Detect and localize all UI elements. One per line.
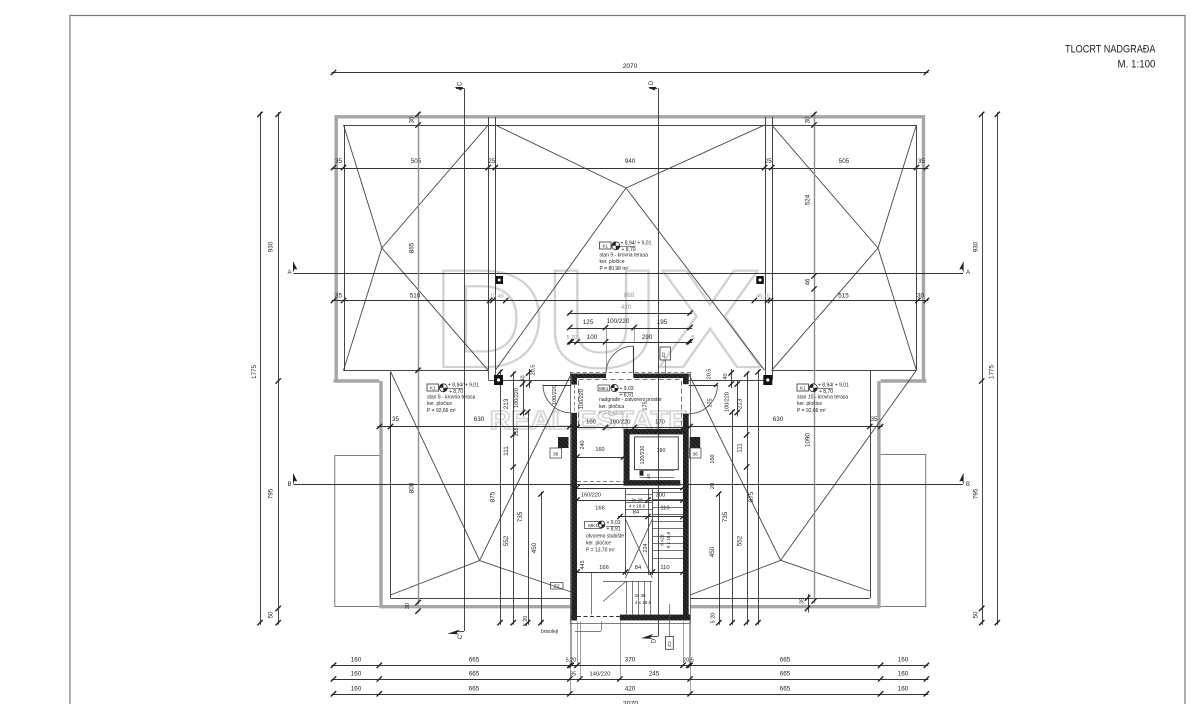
svg-text:M. 1:100: M. 1:100 — [1118, 59, 1156, 71]
svg-text:5: 5 — [691, 335, 694, 341]
svg-text:245: 245 — [649, 671, 660, 678]
svg-text:100: 100 — [586, 420, 596, 426]
svg-text:240: 240 — [580, 440, 586, 449]
svg-text:515: 515 — [838, 293, 849, 300]
svg-text:166: 166 — [595, 506, 605, 512]
svg-text:84: 84 — [635, 565, 642, 571]
svg-text:940: 940 — [625, 158, 636, 165]
svg-text:+ 8,91: + 8,91 — [607, 527, 621, 533]
svg-text:40: 40 — [646, 474, 651, 480]
svg-text:36: 36 — [693, 452, 699, 458]
svg-text:46 10: 46 10 — [756, 294, 770, 300]
svg-text:ker. pločica: ker. pločica — [599, 404, 624, 410]
svg-text:735: 735 — [517, 511, 524, 522]
svg-text:665: 665 — [780, 671, 791, 678]
svg-text:ker. pločice: ker. pločice — [600, 259, 625, 265]
svg-text:450: 450 — [531, 542, 538, 553]
svg-text:36: 36 — [553, 452, 559, 458]
svg-text:100/220: 100/220 — [579, 389, 585, 409]
svg-text:20: 20 — [624, 447, 630, 453]
svg-text:+ 8,94/ + 9,01: + 8,94/ + 9,01 — [818, 383, 849, 389]
svg-text:30: 30 — [806, 116, 812, 123]
svg-text:195: 195 — [657, 319, 668, 326]
svg-text:8 x28: 8 x28 — [660, 534, 665, 546]
svg-text:D: D — [649, 80, 655, 85]
svg-text:875: 875 — [748, 491, 755, 502]
svg-text:DUX: DUX — [433, 240, 762, 397]
svg-text:420: 420 — [621, 304, 632, 311]
svg-text:224: 224 — [643, 543, 649, 552]
svg-text:160: 160 — [351, 657, 362, 664]
svg-text:A: A — [966, 270, 970, 276]
svg-text:TLOCRT NADGRAĐA: TLOCRT NADGRAĐA — [1065, 43, 1156, 55]
svg-text:5 20: 5 20 — [711, 613, 717, 624]
svg-text:110: 110 — [660, 506, 669, 512]
svg-text:510: 510 — [410, 293, 421, 300]
svg-text:30: 30 — [405, 603, 411, 609]
svg-text:ker. pločice: ker. pločice — [427, 401, 452, 407]
svg-text:875: 875 — [490, 491, 497, 502]
svg-text:5,20: 5,20 — [566, 658, 577, 664]
svg-text:930: 930 — [973, 241, 980, 252]
svg-text:3x 28: 3x 28 — [631, 498, 643, 503]
svg-text:stan 10 - krovna terasa: stan 10 - krovna terasa — [797, 395, 848, 401]
svg-text:5 20: 5 20 — [567, 335, 578, 341]
svg-text:10 46: 10 46 — [490, 294, 504, 300]
svg-text:40: 40 — [521, 375, 527, 381]
svg-text:930: 930 — [268, 241, 275, 252]
svg-text:125: 125 — [583, 319, 594, 326]
svg-text:46: 46 — [806, 278, 812, 285]
svg-text:P = 92,66 m²: P = 92,66 m² — [427, 408, 456, 414]
svg-text:Z2: Z2 — [667, 641, 673, 647]
svg-text:25: 25 — [488, 158, 496, 165]
svg-text:9 x 18,6: 9 x 18,6 — [666, 531, 671, 548]
svg-text:170: 170 — [655, 420, 665, 426]
svg-text:160: 160 — [898, 657, 909, 664]
svg-text:P = 8,42 m²: P = 8,42 m² — [599, 411, 625, 417]
svg-text:stan 9 - krovna terasa: stan 9 - krovna terasa — [600, 253, 649, 259]
svg-text:100/220: 100/220 — [607, 318, 630, 325]
svg-text:35: 35 — [918, 158, 926, 165]
svg-text:otvoreno stubište: otvoreno stubište — [586, 534, 624, 540]
svg-text:445: 445 — [580, 560, 586, 569]
svg-text:111: 111 — [503, 446, 510, 456]
svg-text:100/220: 100/220 — [725, 392, 731, 412]
svg-text:160/220: 160/220 — [581, 493, 601, 499]
svg-text:35: 35 — [800, 598, 806, 604]
svg-text:665: 665 — [780, 657, 791, 664]
svg-text:35: 35 — [870, 416, 878, 423]
svg-text:355: 355 — [514, 427, 520, 436]
svg-text:40: 40 — [723, 373, 729, 379]
svg-text:100/220: 100/220 — [514, 388, 520, 408]
svg-text:MK1: MK1 — [599, 386, 609, 391]
svg-text:4 x 18,6: 4 x 18,6 — [629, 504, 646, 509]
svg-text:+ 9,03: + 9,03 — [620, 386, 634, 392]
svg-text:100: 100 — [587, 334, 598, 341]
svg-text:P = 80,98 m²: P = 80,98 m² — [600, 266, 629, 272]
svg-text:+ 8,94/ + 9,01: + 8,94/ + 9,01 — [621, 241, 652, 247]
svg-text:505: 505 — [411, 158, 422, 165]
svg-text:175: 175 — [708, 398, 714, 407]
svg-text:20,5: 20,5 — [531, 365, 537, 376]
svg-text:110: 110 — [660, 565, 669, 571]
svg-text:160: 160 — [898, 685, 909, 692]
svg-text:552: 552 — [503, 535, 510, 546]
svg-text:+ 9,03: + 9,03 — [607, 520, 621, 526]
svg-text:735: 735 — [722, 511, 729, 522]
svg-text:665: 665 — [469, 657, 480, 664]
svg-text:K1: K1 — [603, 244, 609, 249]
svg-text:P = 92,66 m²: P = 92,66 m² — [797, 408, 826, 414]
svg-text:630: 630 — [474, 416, 485, 423]
svg-text:35: 35 — [570, 672, 576, 678]
svg-text:B: B — [287, 482, 291, 488]
svg-text:35: 35 — [335, 293, 343, 300]
svg-text:brisoleji: brisoleji — [541, 629, 558, 635]
svg-text:20: 20 — [710, 483, 716, 489]
svg-text:35: 35 — [335, 158, 343, 165]
svg-text:665: 665 — [780, 685, 791, 692]
svg-text:1090: 1090 — [805, 433, 812, 448]
svg-text:160: 160 — [595, 447, 604, 453]
svg-text:35: 35 — [392, 416, 400, 423]
svg-text:MK1: MK1 — [588, 523, 598, 529]
svg-text:175: 175 — [643, 401, 649, 410]
svg-text:213: 213 — [503, 398, 510, 409]
svg-text:290: 290 — [642, 334, 653, 341]
svg-text:D: D — [652, 638, 658, 643]
svg-text:505: 505 — [839, 158, 850, 165]
svg-text:140/220: 140/220 — [590, 672, 611, 678]
svg-text:20,5: 20,5 — [707, 369, 713, 380]
svg-text:+ 8,94/ + 9,01: + 8,94/ + 9,01 — [448, 383, 479, 389]
svg-text:20,5: 20,5 — [683, 658, 694, 664]
svg-text:B: B — [966, 482, 970, 488]
svg-text:1775: 1775 — [251, 365, 258, 380]
svg-text:160: 160 — [351, 685, 362, 692]
svg-text:524: 524 — [805, 194, 812, 205]
svg-text:160: 160 — [898, 671, 909, 678]
svg-text:50: 50 — [268, 611, 275, 619]
svg-text:100/220: 100/220 — [552, 385, 558, 405]
svg-text:A: A — [287, 270, 291, 276]
svg-text:K1: K1 — [800, 386, 806, 391]
svg-text:ker. pločice: ker. pločice — [797, 401, 822, 407]
svg-text:180: 180 — [657, 448, 666, 454]
svg-text:C: C — [458, 634, 464, 639]
svg-text:868: 868 — [624, 292, 635, 299]
svg-text:795: 795 — [268, 488, 275, 499]
svg-text:100/220: 100/220 — [610, 420, 631, 426]
svg-text:160: 160 — [710, 454, 716, 463]
svg-text:552: 552 — [737, 535, 744, 546]
svg-text:K1: K1 — [430, 386, 436, 391]
svg-text:120/230: 120/230 — [640, 446, 646, 465]
svg-text:30: 30 — [410, 116, 416, 123]
svg-text:ker. pločice: ker. pločice — [586, 541, 611, 547]
svg-text:30: 30 — [917, 293, 925, 300]
svg-text:Z2': Z2' — [554, 584, 560, 589]
svg-text:420: 420 — [625, 685, 636, 692]
svg-text:nadgrađe - zatvoreni prostor: nadgrađe - zatvoreni prostor — [599, 397, 662, 403]
svg-text:25: 25 — [765, 158, 773, 165]
svg-text:5 20: 5 20 — [523, 616, 529, 627]
svg-text:50: 50 — [973, 611, 980, 619]
svg-text:Z2: Z2 — [661, 352, 667, 358]
svg-text:stan 8 - krovna terasa: stan 8 - krovna terasa — [427, 395, 476, 401]
svg-text:665: 665 — [469, 671, 480, 678]
svg-text:200: 200 — [656, 493, 666, 499]
svg-text:630: 630 — [773, 416, 784, 423]
svg-text:166: 166 — [599, 565, 609, 571]
svg-text:C: C — [458, 81, 464, 86]
svg-text:665: 665 — [469, 685, 480, 692]
svg-text:800: 800 — [409, 482, 416, 493]
svg-text:3x 38: 3x 38 — [634, 593, 646, 598]
svg-text:P = 13,70 m²: P = 13,70 m² — [586, 548, 615, 554]
svg-text:2070: 2070 — [623, 63, 638, 70]
svg-text:4 x 18,5: 4 x 18,5 — [635, 600, 652, 605]
svg-text:160: 160 — [351, 671, 362, 678]
svg-text:84: 84 — [633, 510, 640, 516]
svg-text:865: 865 — [409, 242, 416, 253]
svg-text:450: 450 — [709, 546, 716, 557]
svg-text:1775: 1775 — [988, 365, 995, 380]
svg-text:795: 795 — [973, 488, 980, 499]
svg-text:370: 370 — [625, 657, 636, 664]
svg-text:111: 111 — [737, 443, 744, 453]
